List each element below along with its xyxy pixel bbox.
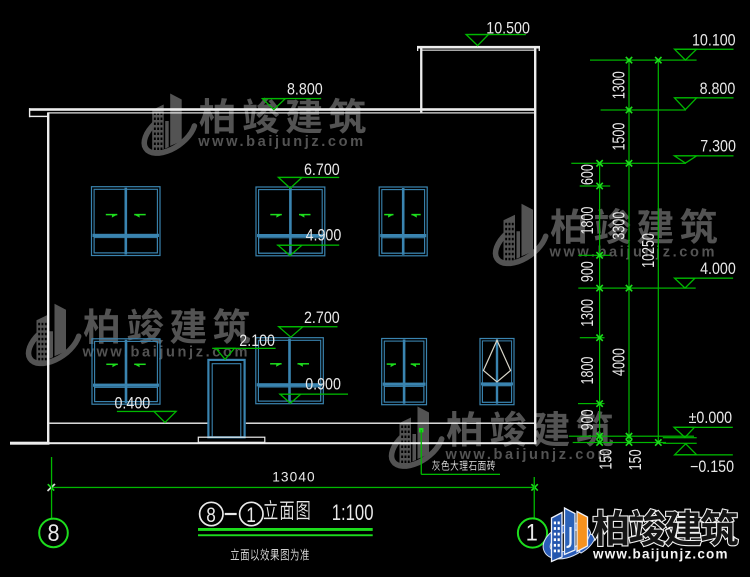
svg-text:150: 150 — [626, 449, 646, 470]
svg-text:8.800: 8.800 — [287, 81, 323, 99]
svg-text:1300: 1300 — [578, 299, 598, 327]
svg-text:−0.150: −0.150 — [690, 458, 734, 476]
svg-text:www.baijunjz.com: www.baijunjz.com — [549, 245, 718, 261]
svg-text:2.700: 2.700 — [304, 309, 340, 327]
svg-text:1300: 1300 — [609, 71, 629, 99]
svg-text:13040: 13040 — [272, 469, 316, 484]
svg-text:www.baijunjz.com: www.baijunjz.com — [197, 134, 366, 150]
svg-text:0.400: 0.400 — [115, 395, 151, 413]
svg-text:900: 900 — [578, 409, 598, 430]
svg-text:2.100: 2.100 — [239, 332, 275, 350]
svg-text:www.baijunjz.com: www.baijunjz.com — [445, 447, 614, 463]
svg-text:8: 8 — [206, 503, 216, 527]
svg-text:±0.000: ±0.000 — [689, 409, 733, 427]
svg-text:4000: 4000 — [609, 348, 629, 376]
svg-text:10.100: 10.100 — [692, 32, 736, 50]
svg-text:900: 900 — [578, 261, 598, 282]
svg-text:1800: 1800 — [578, 357, 598, 385]
svg-text:0.900: 0.900 — [305, 376, 341, 394]
svg-text:6.700: 6.700 — [304, 161, 340, 179]
svg-text:1800: 1800 — [578, 207, 598, 235]
svg-text:4.000: 4.000 — [700, 260, 736, 278]
svg-text:10.500: 10.500 — [486, 20, 530, 38]
svg-text:10250: 10250 — [639, 233, 659, 268]
svg-text:4.900: 4.900 — [306, 227, 342, 245]
svg-text:7.300: 7.300 — [700, 138, 736, 156]
svg-text:1:100: 1:100 — [332, 501, 374, 526]
svg-text:150: 150 — [596, 449, 616, 470]
svg-text:1: 1 — [526, 519, 538, 546]
svg-text:3300: 3300 — [609, 212, 629, 240]
svg-text:600: 600 — [578, 164, 598, 185]
svg-text:www.baijunjz.com: www.baijunjz.com — [592, 547, 729, 562]
svg-text:1500: 1500 — [609, 123, 629, 151]
svg-text:8: 8 — [47, 519, 59, 546]
svg-text:1: 1 — [246, 503, 256, 527]
svg-text:8.800: 8.800 — [700, 80, 736, 98]
